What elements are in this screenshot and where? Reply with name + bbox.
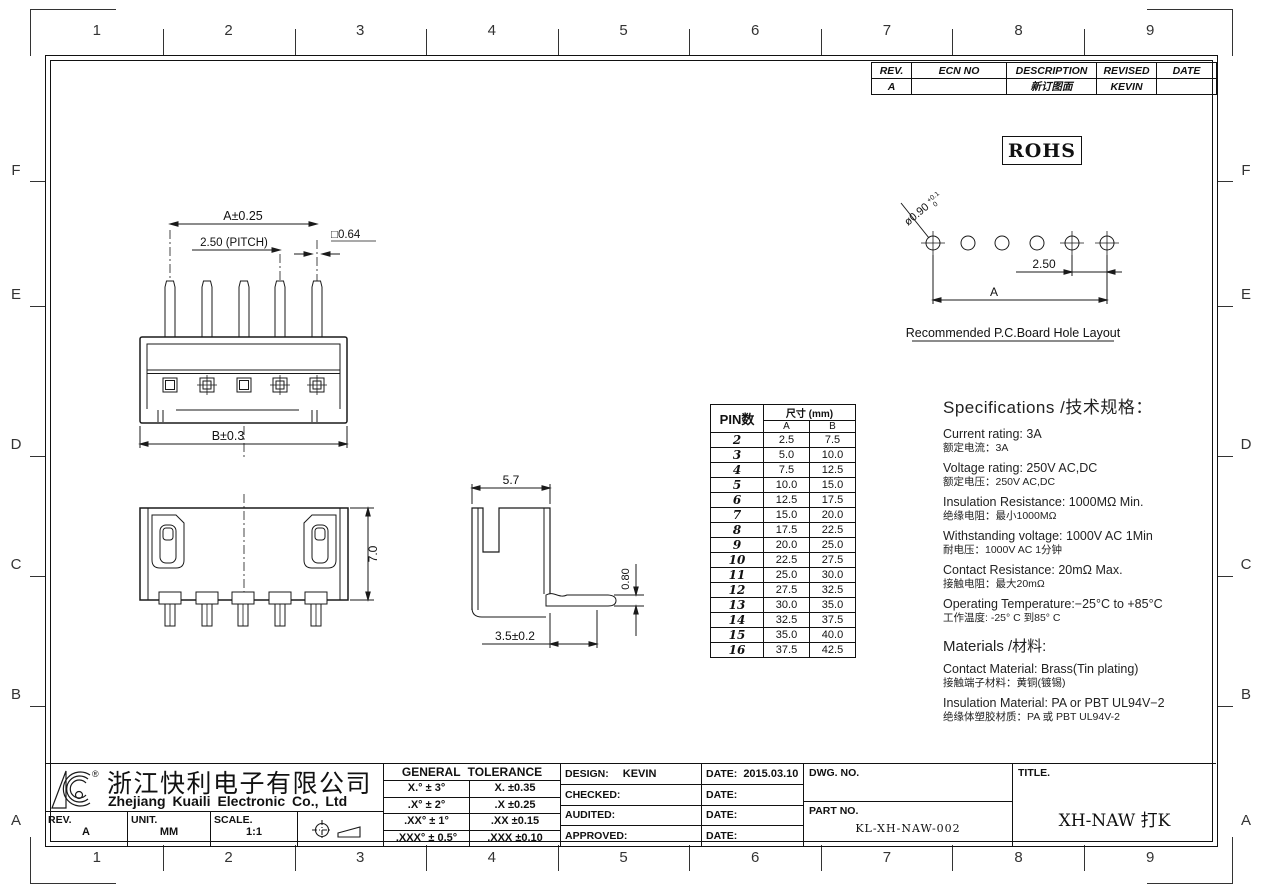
pin-count-cell: 16	[711, 643, 764, 658]
pin-count-cell: 12	[711, 583, 764, 598]
revision-header-cell: REVISED	[1097, 63, 1157, 79]
pin-table-header-size: 尺寸 (mm)	[764, 405, 856, 421]
dim-b-cell: 35.0	[810, 598, 856, 613]
pin-table-header-pin: PIN数	[711, 405, 764, 433]
signoff-date-value: 2015.03.10	[743, 768, 798, 780]
grid-row-label: B	[1234, 686, 1258, 706]
grid-row-label: B	[4, 686, 28, 706]
dim-a-cell: 17.5	[764, 523, 810, 538]
grid-row-label: E	[4, 286, 28, 306]
material-item: Insulation Material: PA or PBT UL94V−2 绝…	[943, 696, 1231, 724]
pin-count-cell: 15	[711, 628, 764, 643]
specifications-block: Specifications /技术规格： Current rating: 3A…	[943, 393, 1231, 730]
spec-item: Withstanding voltage: 1000V AC 1Min 耐电压：…	[943, 529, 1231, 557]
pin-table-row: 10 22.5 27.5	[711, 553, 856, 568]
tolerance-rows: X.° ± 3° X. ±0.35 .X° ± 2° .X ±0.25 .XX°…	[384, 781, 560, 846]
tolerance-row: X.° ± 3° X. ±0.35	[384, 781, 560, 797]
signoff-date-label: DATE:	[706, 809, 737, 821]
third-angle-projection-icon	[312, 819, 368, 841]
material-item: Contact Material: Brass(Tin plating) 接触端…	[943, 662, 1231, 690]
dim-b-cell: 30.0	[810, 568, 856, 583]
spec-item-english: Operating Temperature:−25°C to +85°C	[943, 597, 1231, 612]
front-view-drawing: A±0.25 2.50 (PITCH) □0.64 B±0.3	[128, 196, 383, 461]
revision-rev: A	[872, 79, 912, 95]
dim-a-cell: 30.0	[764, 598, 810, 613]
spec-item: Voltage rating: 250V AC,DC 额定电压：250V AC,…	[943, 461, 1231, 489]
dim-a-cell: 5.0	[764, 448, 810, 463]
specifications-title: Specifications /技术规格：	[943, 393, 1231, 418]
spec-item-chinese: 绝缘电阻：最小1000MΩ	[943, 510, 1231, 523]
dim-a-cell: 12.5	[764, 493, 810, 508]
pin-count-cell: 9	[711, 538, 764, 553]
company-cell: ® 浙江快利电子有限公司 Zhejiang Kuaili Electronic …	[45, 764, 383, 846]
spec-item-chinese: 额定电压：250V AC,DC	[943, 476, 1231, 489]
rev-cell: REV. A	[45, 812, 128, 847]
rev-unit-scale-row: REV. A UNIT. MM SCALE. 1:1	[45, 811, 383, 847]
grid-ticks-left	[30, 181, 45, 707]
tolerance-linear: .X ±0.25	[469, 798, 560, 814]
signoff-date-label: DATE:	[706, 830, 737, 842]
spec-item-english: Contact Resistance: 20mΩ Max.	[943, 563, 1231, 578]
grid-ticks-bottom	[163, 845, 1085, 871]
signoff-row: APPROVED: DATE:	[561, 825, 803, 846]
part-no-cell: PART NO. KL-XH-NAW-002	[804, 801, 1012, 847]
hole-pitch-label: 2.50	[1032, 257, 1056, 271]
material-item-chinese: 接触端子材料：黄铜(镀锡)	[943, 677, 1231, 690]
unit-cell: UNIT. MM	[128, 812, 211, 847]
engineering-drawing-sheet: { "grid": { "columns": ["1","2","3","4",…	[0, 0, 1262, 892]
pin-table-row: 12 27.5 32.5	[711, 583, 856, 598]
pcb-hole-layout-drawing: ø0.90 +0.1 0 2.50 A Recommended P.C.Boar…	[898, 192, 1220, 350]
tolerance-angular: .XX° ± 1°	[384, 814, 469, 830]
registered-mark: ®	[92, 769, 99, 779]
pin-dimension-table: PIN数 尺寸 (mm) A B 2 2.5 7.5 3 5.0 10.0 4 …	[710, 404, 856, 658]
part-no-label: PART NO.	[809, 805, 858, 817]
signoff-cell: DESIGN: KEVIN DATE: 2015.03.10 CHECKED: …	[560, 764, 803, 846]
pin-table-row: 6 12.5 17.5	[711, 493, 856, 508]
signoff-row: DESIGN: KEVIN DATE: 2015.03.10	[561, 764, 803, 784]
dim-b-cell: 32.5	[810, 583, 856, 598]
grid-column-label: 1	[31, 849, 163, 873]
dim-width-label: 5.7	[503, 473, 520, 487]
dwg-no-label: DWG. NO.	[809, 767, 859, 779]
spec-item-english: Voltage rating: 250V AC,DC	[943, 461, 1231, 476]
dim-a-cell: 10.0	[764, 478, 810, 493]
pin-table-row: 2 2.5 7.5	[711, 433, 856, 448]
signoff-role-label: CHECKED:	[565, 789, 620, 801]
dim-b-cell: 37.5	[810, 613, 856, 628]
dim-pin-thickness-label: 0.80	[620, 568, 632, 589]
revision-description: 新订图面	[1007, 79, 1097, 95]
dim-b-cell: 27.5	[810, 553, 856, 568]
rohs-stamp: ROHS	[1002, 136, 1082, 165]
grid-ruler-right: FEDCBA	[1234, 55, 1258, 845]
top-view-drawing: 7.0	[138, 468, 388, 636]
unit-value: MM	[128, 826, 210, 838]
dim-b-cell: 10.0	[810, 448, 856, 463]
part-no-value: KL-XH-NAW-002	[804, 822, 1012, 835]
dim-tail-label: 3.5±0.2	[495, 629, 535, 643]
materials-list: Contact Material: Brass(Tin plating) 接触端…	[943, 662, 1231, 724]
dim-a-cell: 27.5	[764, 583, 810, 598]
dim-b-cell: 7.5	[810, 433, 856, 448]
signoff-row: CHECKED: DATE:	[561, 784, 803, 805]
signoff-role-label: DESIGN:	[565, 768, 609, 780]
tolerance-linear: X. ±0.35	[469, 781, 560, 797]
spec-item-english: Current rating: 3A	[943, 427, 1231, 442]
title-label: TITLE.	[1018, 767, 1050, 779]
pin-table-row: 15 35.0 40.0	[711, 628, 856, 643]
spec-item-english: Withstanding voltage: 1000V AC 1Min	[943, 529, 1231, 544]
grid-ticks-top	[163, 29, 1085, 55]
signoff-date: DATE:	[701, 806, 803, 826]
pin-table-row: 3 5.0 10.0	[711, 448, 856, 463]
dim-b-cell: 42.5	[810, 643, 856, 658]
signoff-role: AUDITED:	[561, 806, 701, 826]
revision-row: A 新订图面 KEVIN	[872, 79, 1217, 95]
tolerance-cell: GENERAL TOLERANCE X.° ± 3° X. ±0.35 .X° …	[383, 764, 560, 846]
dim-a-cell: 7.5	[764, 463, 810, 478]
dim-pitch-label: 2.50 (PITCH)	[200, 237, 268, 249]
rev-label: REV.	[48, 814, 72, 826]
company-logo: ®	[48, 765, 108, 811]
pin-table-row: 16 37.5 42.5	[711, 643, 856, 658]
pin-count-cell: 6	[711, 493, 764, 508]
dwg-no-cell: DWG. NO.	[804, 764, 1012, 801]
signoff-role: CHECKED:	[561, 785, 701, 805]
tolerance-title: GENERAL TOLERANCE	[384, 764, 560, 781]
dim-a-cell: 35.0	[764, 628, 810, 643]
material-item-english: Contact Material: Brass(Tin plating)	[943, 662, 1231, 677]
dim-height-label: 7.0	[366, 545, 380, 562]
hole-diameter-label: ø0.90	[902, 201, 931, 228]
dim-a-cell: 25.0	[764, 568, 810, 583]
dim-b-cell: 22.5	[810, 523, 856, 538]
dim-b-cell: 40.0	[810, 628, 856, 643]
pin-table-row: 4 7.5 12.5	[711, 463, 856, 478]
revision-table: REV.ECN NODESCRIPTIONREVISEDDATE A 新订图面 …	[871, 62, 1217, 95]
dim-b-cell: 17.5	[810, 493, 856, 508]
pin-count-cell: 14	[711, 613, 764, 628]
pin-count-cell: 7	[711, 508, 764, 523]
dim-b-cell: 12.5	[810, 463, 856, 478]
projection-symbol-cell	[298, 812, 383, 847]
signoff-date: DATE: 2015.03.10	[701, 764, 803, 784]
dwg-part-cell: DWG. NO. PART NO. KL-XH-NAW-002	[803, 764, 1012, 846]
grid-row-label: D	[1234, 436, 1258, 456]
pcb-layout-caption: Recommended P.C.Board Hole Layout	[906, 326, 1121, 340]
spec-item-chinese: 额定电流：3A	[943, 442, 1231, 455]
signoff-row: AUDITED: DATE:	[561, 805, 803, 826]
signoff-date-label: DATE:	[706, 768, 737, 780]
tolerance-row: .XX° ± 1° .XX ±0.15	[384, 813, 560, 830]
dim-pin-square-label: □0.64	[331, 229, 361, 241]
pin-table-row: 7 15.0 20.0	[711, 508, 856, 523]
pin-table-header-b: B	[810, 421, 856, 433]
grid-row-label: E	[1234, 286, 1258, 306]
material-item-chinese: 绝缘体塑胶材质：PA 或 PBT UL94V-2	[943, 711, 1231, 724]
spec-item-chinese: 工作温度: -25° C 到85° C	[943, 612, 1231, 625]
grid-row-label: C	[1234, 556, 1258, 576]
dim-a-cell: 22.5	[764, 553, 810, 568]
material-item-english: Insulation Material: PA or PBT UL94V−2	[943, 696, 1231, 711]
pin-count-cell: 8	[711, 523, 764, 538]
tolerance-angular: .XXX° ± 0.5°	[384, 831, 469, 847]
grid-column-label: 9	[1084, 22, 1216, 46]
drawing-title-value: XH-NAW 打K	[1013, 806, 1216, 831]
company-name-english: Zhejiang Kuaili Electronic Co., Ltd	[108, 793, 347, 809]
materials-title: Materials /材料:	[943, 635, 1231, 656]
revision-header-cell: DATE	[1157, 63, 1217, 79]
revision-header-row: REV.ECN NODESCRIPTIONREVISEDDATE	[872, 63, 1217, 79]
hole-tolerance-lower: 0	[932, 201, 940, 209]
grid-row-label: F	[4, 162, 28, 182]
signoff-role: APPROVED:	[561, 826, 701, 846]
grid-row-label: C	[4, 556, 28, 576]
dim-b-cell: 20.0	[810, 508, 856, 523]
pin-count-cell: 5	[711, 478, 764, 493]
tolerance-linear: .XXX ±0.10	[469, 831, 560, 847]
grid-column-label: 1	[31, 22, 163, 46]
spec-item-english: Insulation Resistance: 1000MΩ Min.	[943, 495, 1231, 510]
scale-cell: SCALE. 1:1	[211, 812, 298, 847]
revision-ecn-no	[912, 79, 1007, 95]
pin-count-cell: 4	[711, 463, 764, 478]
spec-item: Operating Temperature:−25°C to +85°C 工作温…	[943, 597, 1231, 625]
dim-a-cell: 20.0	[764, 538, 810, 553]
tolerance-row: .XXX° ± 0.5° .XXX ±0.10	[384, 830, 560, 847]
revision-header-cell: ECN NO	[912, 63, 1007, 79]
pin-count-cell: 10	[711, 553, 764, 568]
pin-count-cell: 13	[711, 598, 764, 613]
tolerance-row: .X° ± 2° .X ±0.25	[384, 797, 560, 814]
pin-table-row: 9 20.0 25.0	[711, 538, 856, 553]
dim-b-cell: 15.0	[810, 478, 856, 493]
dim-a-cell: 15.0	[764, 508, 810, 523]
tolerance-angular: X.° ± 3°	[384, 781, 469, 797]
revision-header-cell: DESCRIPTION	[1007, 63, 1097, 79]
tolerance-linear: .XX ±0.15	[469, 814, 560, 830]
grid-ruler-left: FEDCBA	[4, 55, 28, 845]
scale-label: SCALE.	[214, 814, 253, 826]
signoff-role-label: AUDITED:	[565, 809, 615, 821]
pin-table-row: 14 32.5 37.5	[711, 613, 856, 628]
spec-item-chinese: 接触电阻：最大20mΩ	[943, 578, 1231, 591]
pin-count-cell: 3	[711, 448, 764, 463]
signoff-date: DATE:	[701, 785, 803, 805]
dim-b-label: B±0.3	[212, 429, 245, 443]
spec-item-chinese: 耐电压：1000V AC 1分钟	[943, 544, 1231, 557]
revision-date	[1157, 79, 1217, 95]
dim-b-cell: 25.0	[810, 538, 856, 553]
spec-item: Current rating: 3A 额定电流：3A	[943, 427, 1231, 455]
grid-row-label: D	[4, 436, 28, 456]
side-view-drawing: 5.7 0.80 3.5±0.2	[462, 468, 662, 658]
specifications-list: Current rating: 3A 额定电流：3A Voltage ratin…	[943, 427, 1231, 625]
pin-table-row: 8 17.5 22.5	[711, 523, 856, 538]
grid-column-label: 9	[1084, 849, 1216, 873]
signoff-date: DATE:	[701, 826, 803, 846]
signoff-role: DESIGN: KEVIN	[561, 764, 701, 784]
title-block: ® 浙江快利电子有限公司 Zhejiang Kuaili Electronic …	[45, 763, 1216, 846]
spec-item: Insulation Resistance: 1000MΩ Min. 绝缘电阻：…	[943, 495, 1231, 523]
scale-value: 1:1	[211, 826, 297, 838]
pin-table-row: 13 30.0 35.0	[711, 598, 856, 613]
signoff-date-label: DATE:	[706, 789, 737, 801]
signoff-role-label: APPROVED:	[565, 830, 627, 842]
dim-a-cell: 37.5	[764, 643, 810, 658]
spec-item: Contact Resistance: 20mΩ Max. 接触电阻：最大20m…	[943, 563, 1231, 591]
pin-table-header-a: A	[764, 421, 810, 433]
rev-value: A	[45, 826, 127, 838]
pin-table-row: 5 10.0 15.0	[711, 478, 856, 493]
pin-count-cell: 11	[711, 568, 764, 583]
dim-a-cell: 2.5	[764, 433, 810, 448]
dim-a-label: A±0.25	[223, 209, 263, 223]
dim-a-cell: 32.5	[764, 613, 810, 628]
grid-row-label: A	[4, 812, 28, 832]
hole-span-label: A	[990, 285, 998, 299]
grid-row-label: F	[1234, 162, 1258, 182]
drawing-title-cell: TITLE. XH-NAW 打K	[1012, 764, 1216, 846]
pin-table-row: 11 25.0 30.0	[711, 568, 856, 583]
pin-count-cell: 2	[711, 433, 764, 448]
unit-label: UNIT.	[131, 814, 157, 826]
grid-row-label: A	[1234, 812, 1258, 832]
tolerance-angular: .X° ± 2°	[384, 798, 469, 814]
signoff-name: KEVIN	[623, 768, 657, 780]
revision-header-cell: REV.	[872, 63, 912, 79]
revision-revised-by: KEVIN	[1097, 79, 1157, 95]
